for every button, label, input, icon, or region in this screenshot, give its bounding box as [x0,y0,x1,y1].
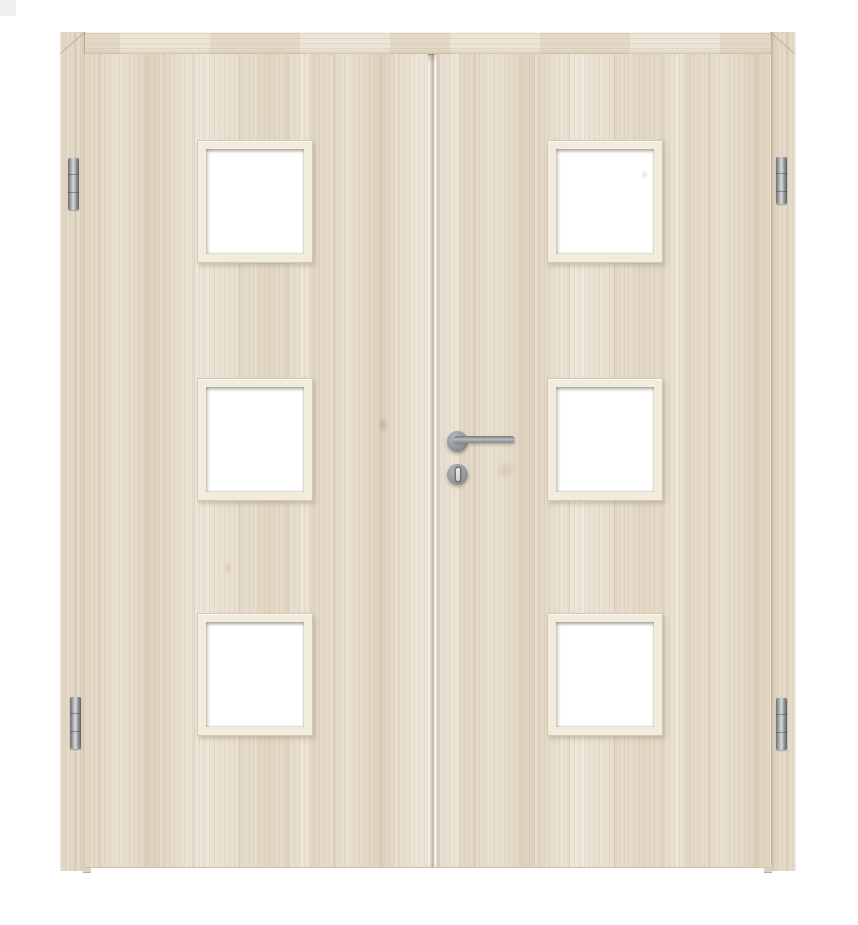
glazing-right-bottom [547,613,663,736]
hinge-top-left [68,158,79,210]
wood-knot [376,416,390,434]
glazing-left-top [197,140,313,263]
glass-pane [556,387,654,492]
keyhole [456,468,460,481]
product-photo-stage [0,0,858,925]
wood-knot [492,458,518,482]
glass-pane [556,149,654,254]
image-corner-artifact [0,0,16,16]
glass-pane [206,149,304,254]
glass-pane [206,622,304,727]
wood-knot [640,168,649,181]
glass-pane [206,387,304,492]
door-leaves-area [84,54,771,868]
key-escutcheon [447,464,468,485]
hinge-top-right [776,157,787,204]
door-frame-top-rail [60,32,795,55]
glazing-left-middle [197,378,313,501]
hinge-bottom-right [776,698,787,750]
glazing-right-middle [547,378,663,501]
hinge-bottom-left [70,697,81,749]
glazing-right-top [547,140,663,263]
wood-knot [222,560,234,576]
glass-pane [556,622,654,727]
glazing-left-bottom [197,613,313,736]
door-handle-lever [453,436,515,443]
leaf-meeting-gap [428,54,440,867]
